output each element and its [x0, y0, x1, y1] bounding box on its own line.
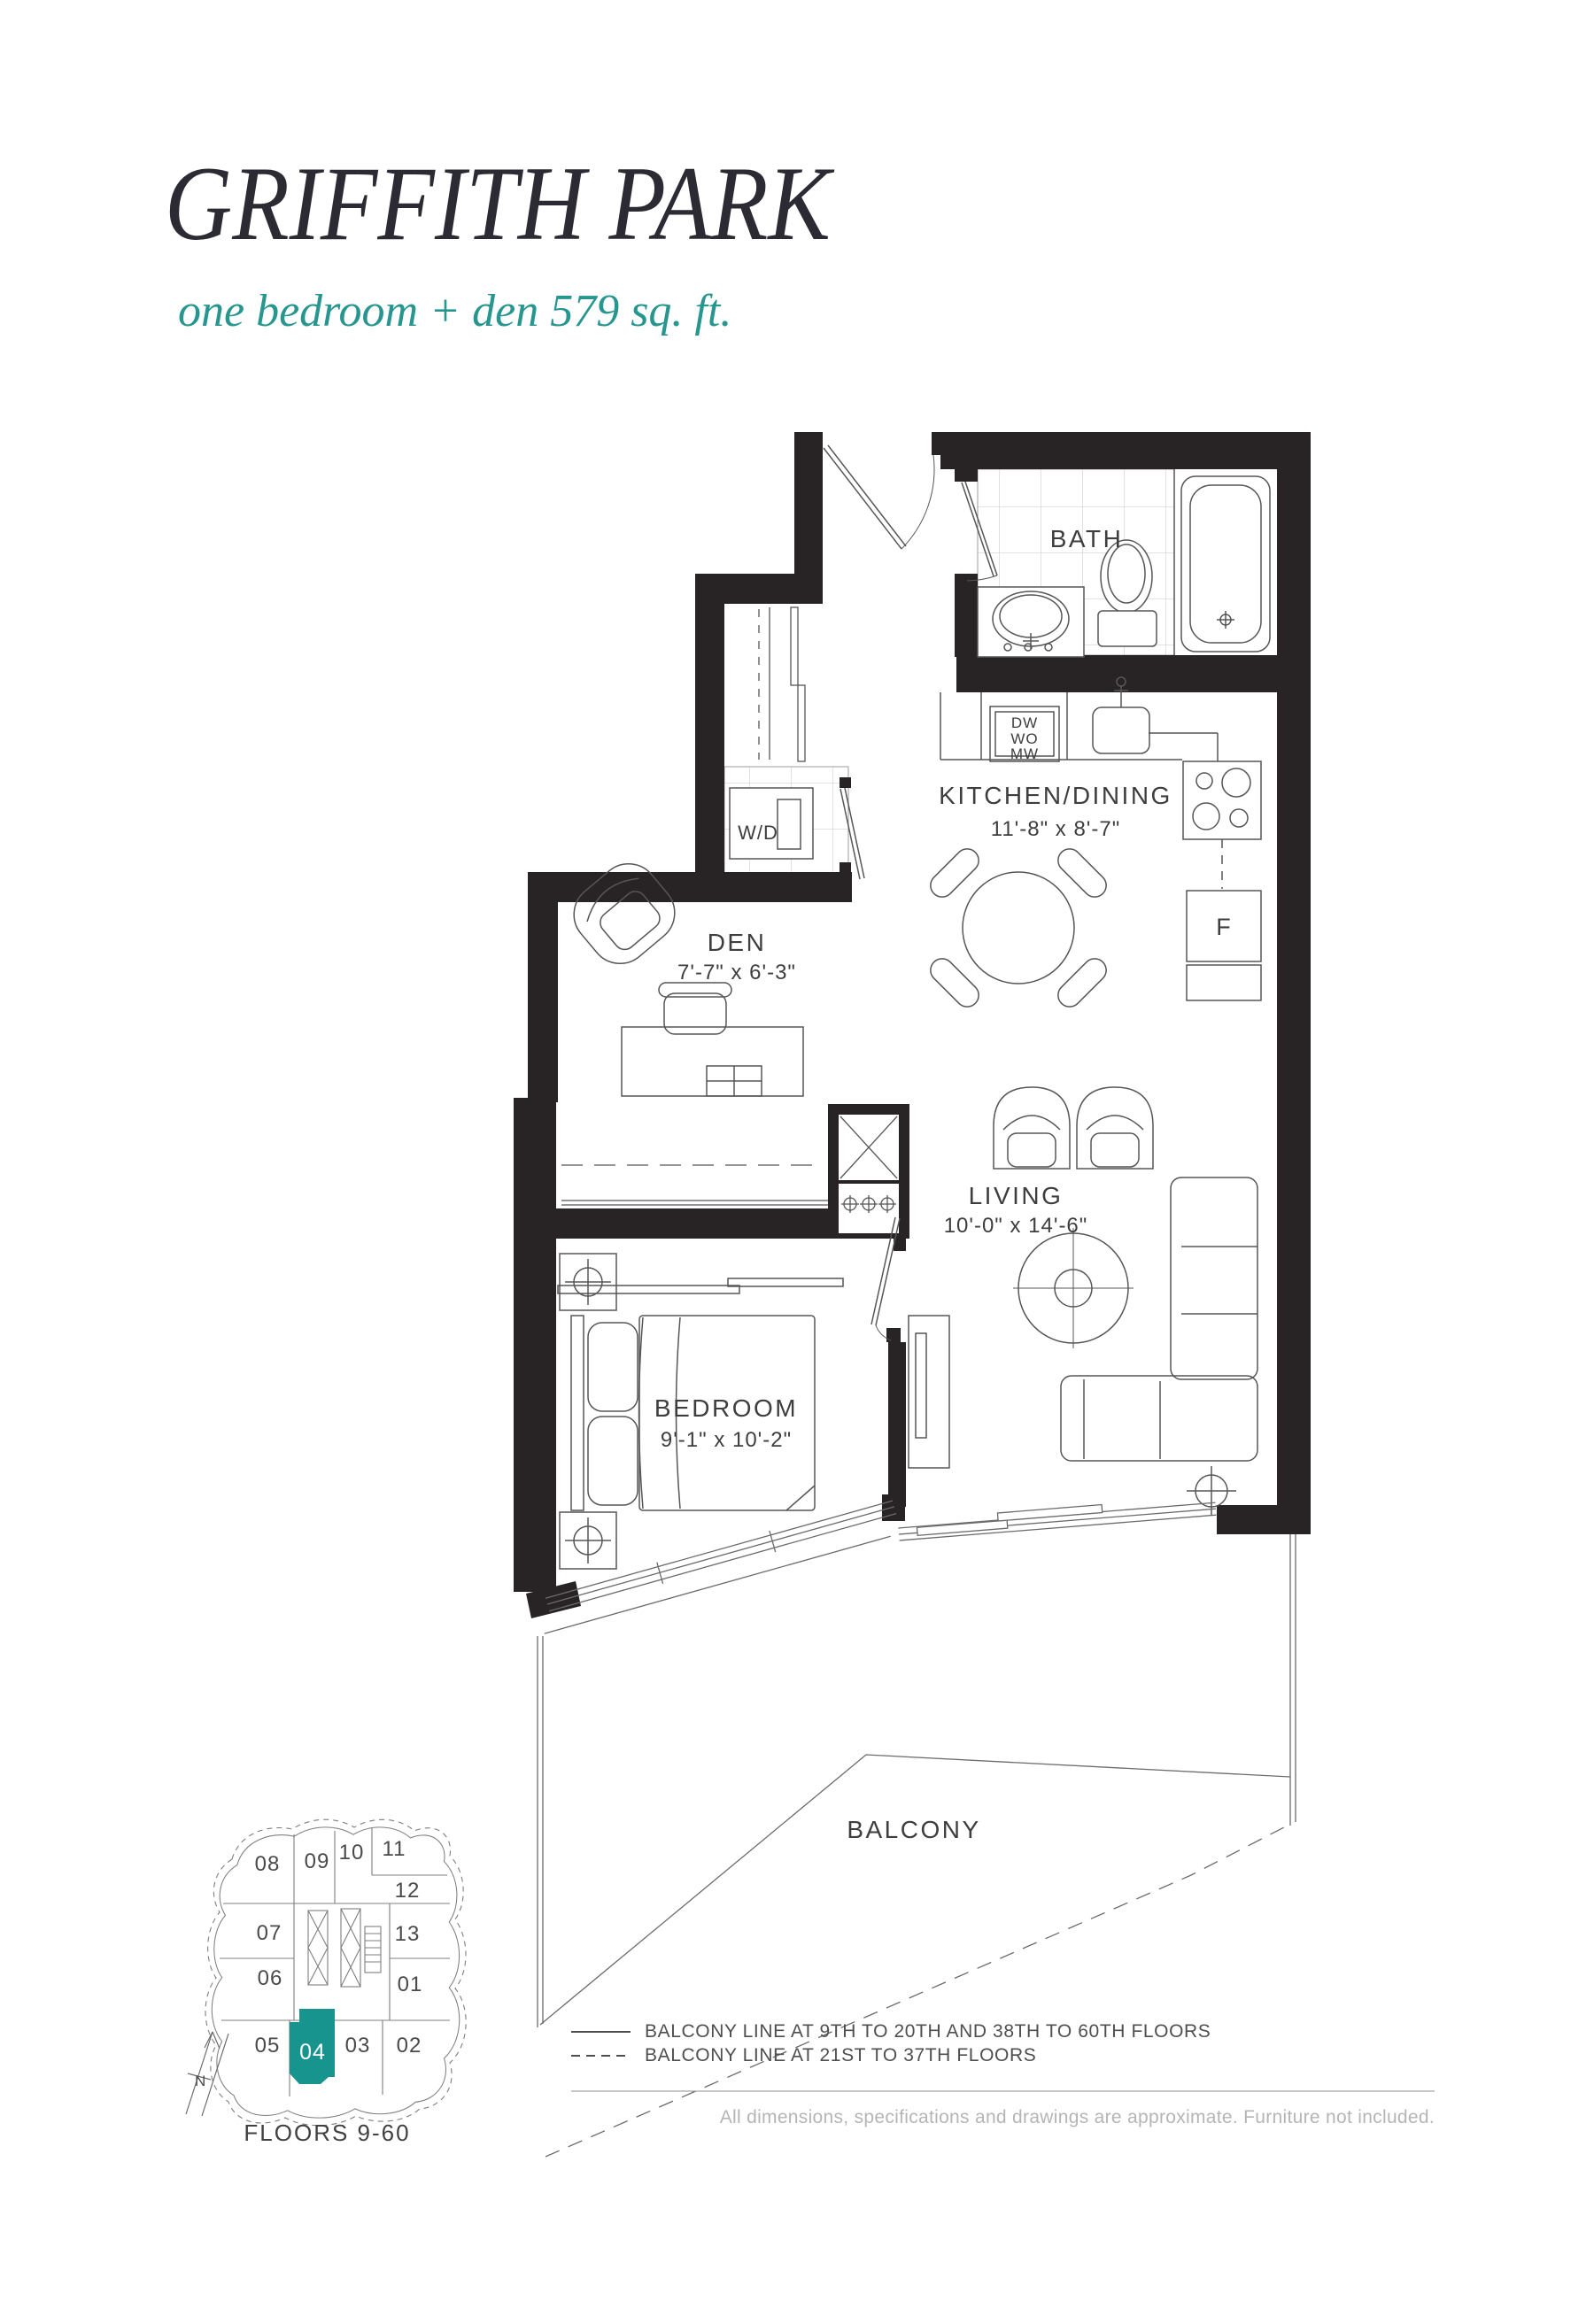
keyplan-floors-label: FLOORS 9-60 [232, 2119, 422, 2147]
keyplan-unit-04: 04 [299, 2040, 326, 2065]
wardrobe-closet [839, 1115, 899, 1233]
floorplan-page: GRIFFITH PARK one bedroom + den 579 sq. … [0, 0, 1594, 2324]
keyplan-unit-07: 07 [257, 1921, 282, 1945]
den-dims: 7'-7" x 6'-3" [677, 961, 796, 984]
den-label: DEN [708, 929, 767, 956]
dishwasher-label: DW [1011, 714, 1038, 731]
north-arrow-icon: N [186, 2032, 228, 2116]
bedroom-dims: 9'-1" x 10'-2" [661, 1428, 792, 1452]
north-label: N [195, 2073, 205, 2089]
keyplan-unit-13: 13 [395, 1922, 421, 1946]
keyplan-unit-05: 05 [255, 2034, 281, 2058]
kitchen-fixtures [925, 677, 1261, 1012]
kitchen-label: KITCHEN/DINING [939, 782, 1172, 809]
keyplan-unit-06: 06 [258, 1966, 283, 1990]
bedroom-label: BEDROOM [654, 1394, 798, 1422]
microwave-label: MW [1010, 745, 1039, 762]
living-furniture [909, 1087, 1257, 1516]
balcony-windows [534, 1495, 1216, 1633]
keyplan: 08 09 10 11 12 07 13 06 01 05 04 03 02 [205, 1819, 466, 2126]
keyplan-unit-01: 01 [398, 1973, 423, 1996]
keyplan-unit-10: 10 [339, 1841, 365, 1865]
keyplan-unit-09: 09 [305, 1849, 330, 1873]
room-labels: BATH KITCHEN/DINING 11'-8" x 8'-7" DEN 7… [654, 525, 1232, 1843]
bath-label: BATH [1050, 525, 1124, 552]
living-label: LIVING [969, 1182, 1064, 1209]
keyplan-unit-02: 02 [397, 2034, 422, 2058]
washer-dryer-label: W/D [738, 822, 778, 844]
living-dims: 10'-0" x 14'-6" [944, 1214, 1088, 1238]
kitchen-dims: 11'-8" x 8'-7" [991, 817, 1120, 841]
balcony-line-solid [540, 1755, 1290, 2025]
keyplan-unit-12: 12 [395, 1879, 421, 1903]
fridge-label: F [1216, 914, 1232, 940]
keyplan-unit-08: 08 [255, 1852, 281, 1876]
entry-door [824, 445, 934, 549]
disclaimer-text: All dimensions, specifications and drawi… [571, 2107, 1435, 2128]
floorplan-drawing: BATH KITCHEN/DINING 11'-8" x 8'-7" DEN 7… [0, 0, 1594, 2324]
keyplan-unit-03: 03 [345, 2034, 371, 2058]
keyplan-unit-11: 11 [383, 1837, 406, 1861]
foyer-closet [759, 607, 805, 761]
legend-item-solid: BALCONY LINE AT 9TH TO 20TH AND 38TH TO … [645, 2021, 1211, 2042]
legend-item-dashed: BALCONY LINE AT 21ST TO 37TH FLOORS [645, 2045, 1036, 2066]
balcony-label: BALCONY [847, 1816, 980, 1843]
